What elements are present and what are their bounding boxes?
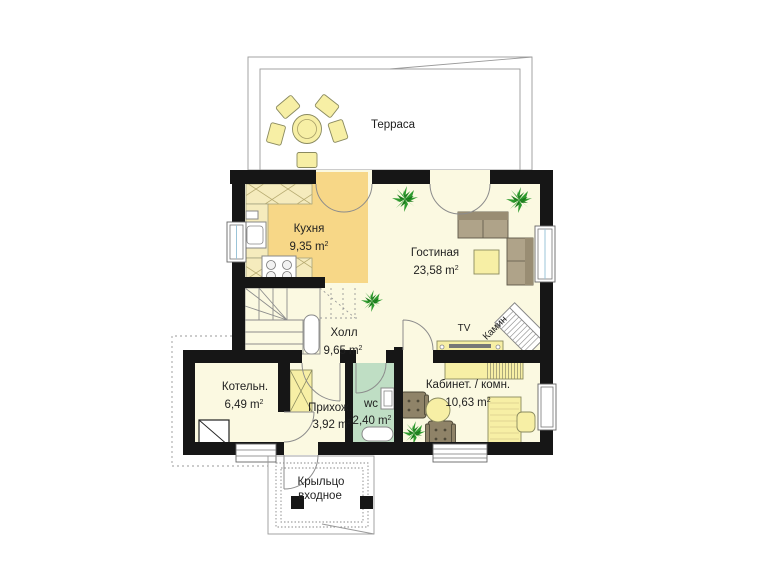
kitchen-area-label: 9,35m2 <box>290 241 329 253</box>
office-wardrobe <box>445 362 523 379</box>
kitchen-window <box>227 222 246 262</box>
porch-label-line1: Крыльцо <box>298 476 345 488</box>
floor-plan-drawing: Терраса <box>0 0 768 576</box>
office-name-label: Кабинет. / комн. <box>426 379 510 391</box>
office-area-label: 10,63m2 <box>445 397 490 409</box>
boiler-area-label: 6,49m2 <box>225 399 264 411</box>
office-desk-chair <box>517 412 535 432</box>
entry-area-label: 3,92m2 <box>313 419 352 431</box>
office-side-window <box>538 384 556 430</box>
boiler-window <box>236 444 276 462</box>
living-name-label: Гостиная <box>411 247 459 259</box>
floor-plan-page: Терраса <box>0 0 768 576</box>
wc-name-label: wc <box>363 398 378 410</box>
porch-post <box>360 496 373 509</box>
terrace-roof-line <box>390 57 532 69</box>
boiler-name-label: Котельн. <box>222 381 268 393</box>
stair-rail <box>304 315 319 354</box>
tv-label: TV <box>458 323 471 334</box>
terrace-table <box>293 115 322 144</box>
porch-roof-line <box>322 524 374 534</box>
office-bottom-window <box>433 444 487 462</box>
terrace: Терраса <box>248 57 532 170</box>
entry-name-label: Прихож. <box>308 402 352 414</box>
wc-toilet <box>362 427 393 441</box>
terrace-label: Терраса <box>371 119 416 131</box>
wc-sink <box>381 388 394 409</box>
wc-area-label: 2,40m2 <box>353 415 392 427</box>
living-window <box>535 226 555 282</box>
living-area-label: 23,58m2 <box>413 265 458 277</box>
office-desk <box>488 397 521 443</box>
coffee-table <box>474 250 499 274</box>
porch-label-line2: входное <box>298 490 342 502</box>
terrace-dining-set <box>266 94 348 168</box>
hall-name-label: Холл <box>330 327 357 339</box>
kitchen-name-label: Кухня <box>294 223 325 235</box>
hall-area-label: 9,65m2 <box>324 345 363 357</box>
